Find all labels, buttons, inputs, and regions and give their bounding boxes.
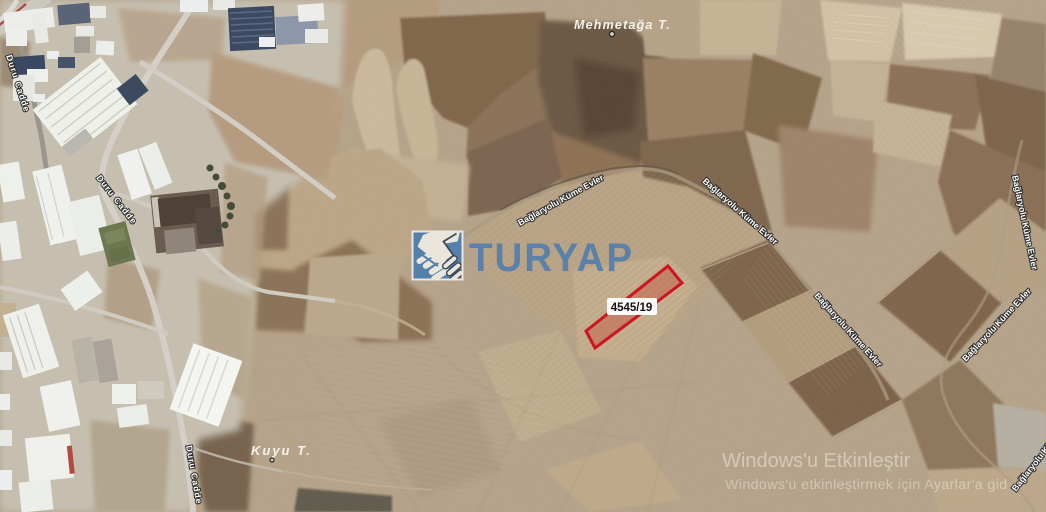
- svg-text:Windows'u etkinleştirmek için: Windows'u etkinleştirmek için Ayarlar'a …: [725, 477, 1008, 493]
- svg-text:Mehmetağa T.: Mehmetağa T.: [574, 18, 671, 32]
- svg-text:TURYAP: TURYAP: [469, 236, 634, 280]
- svg-text:Windows'u Etkinleştir: Windows'u Etkinleştir: [722, 450, 911, 472]
- svg-text:4545/19: 4545/19: [611, 302, 653, 314]
- svg-text:Kuyu T.: Kuyu T.: [251, 443, 312, 458]
